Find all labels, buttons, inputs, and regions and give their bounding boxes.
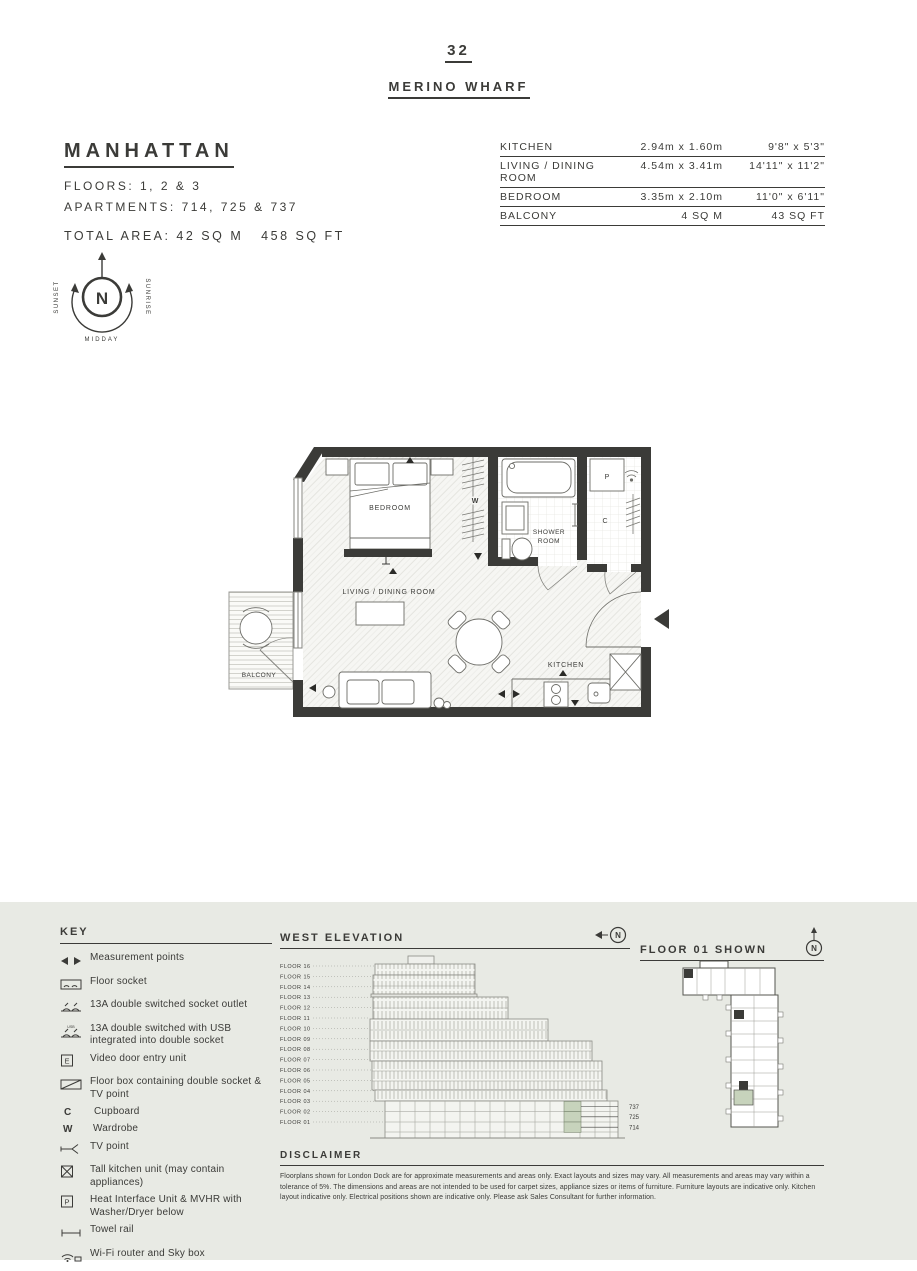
key-item-label: Measurement points [90,952,184,971]
svg-text:FLOOR 15: FLOOR 15 [280,974,311,980]
key-item: C Cupboard [60,1106,272,1119]
svg-text:FLOOR 16: FLOOR 16 [280,964,311,970]
north-arrow-up-icon: N [804,926,824,958]
disclaimer-title: DISCLAIMER [280,1150,824,1166]
highlighted-unit [734,1090,753,1105]
shower-room-label2: ROOM [538,538,560,545]
page-number: 32 [0,42,917,63]
cupboard-letter-icon: C [60,1106,94,1119]
table-row: LIVING / DINING ROOM 4.54m x 3.41m 14'11… [500,158,825,188]
wardrobe-label: W [472,498,479,505]
svg-text:FLOOR 02: FLOOR 02 [280,1110,311,1116]
imperial-size: 11'0" x 6'11" [737,191,825,203]
video-door-entry-icon: E [60,1053,90,1072]
balcony-label: BALCONY [242,672,277,679]
key-item: Floor socket [60,976,272,995]
cupboard-label: C [602,518,607,525]
west-elevation-section: WEST ELEVATION N [280,926,630,949]
key-item-label: TV point [90,1141,129,1160]
key-item: Floor box containing double socket & TV … [60,1076,272,1102]
key-item-label: Towel rail [90,1224,134,1243]
svg-text:FLOOR 05: FLOOR 05 [280,1078,311,1084]
svg-text:E: E [64,1056,69,1065]
table-row: BEDROOM 3.35m x 2.10m 11'0" x 6'11" [500,189,825,207]
svg-text:FLOOR 01: FLOOR 01 [280,1120,311,1126]
measurement-points-icon [60,952,90,971]
heat-interface-unit-icon: P [60,1194,90,1220]
svg-text:FLOOR 13: FLOOR 13 [280,995,311,1001]
compass-icon: N SUNSET SUNRISE MIDDAY [50,250,154,344]
svg-text:FLOOR 12: FLOOR 12 [280,1006,311,1012]
page-number-text: 32 [445,42,472,63]
key-item-label: Floor box containing double socket & TV … [90,1076,272,1102]
development-title: MERINO WHARF [0,78,917,99]
metric-size: 3.35m x 2.10m [598,191,737,203]
svg-text:USB: USB [67,1025,75,1029]
heat-unit-label: P [605,474,610,481]
wardrobe-letter-icon: W [60,1123,93,1136]
key-item-label: Floor socket [90,976,147,995]
compass-sunrise-label: SUNRISE [144,278,150,315]
svg-text:FLOOR 11: FLOOR 11 [280,1016,310,1022]
wifi-router-icon [60,1248,90,1267]
svg-text:N: N [811,944,817,953]
table-row: BALCONY 4 SQ M 43 SQ FT [500,208,825,226]
key-item: USB 13A double switched with USB integra… [60,1023,272,1049]
bedroom-bench [344,549,432,557]
bedroom-label: BEDROOM [369,505,411,512]
svg-text:N: N [615,931,621,940]
floor-labels: FLOOR 16 FLOOR 15 FLOOR 14 FLOOR 13 FLOO… [280,964,385,1126]
imperial-size: 14'11" x 11'2" [737,160,825,172]
highlighted-units [564,1101,581,1132]
key-item: P Heat Interface Unit & MVHR with Washer… [60,1194,272,1220]
west-elevation-title: WEST ELEVATION [280,932,404,944]
key-item-label: Wi-Fi router and Sky box [90,1248,205,1267]
tv-point-icon [60,1141,90,1160]
key-item-label: Video door entry unit [90,1053,186,1072]
apartment-info: MANHATTAN FLOORS: 1, 2 & 3 APARTMENTS: 7… [64,140,345,243]
disclaimer-text: Floorplans shown for London Dock are for… [280,1172,824,1204]
socket-outlet-icon [60,999,90,1018]
svg-text:FLOOR 09: FLOOR 09 [280,1037,311,1043]
room-name: BEDROOM [500,191,598,203]
svg-text:FLOOR 04: FLOOR 04 [280,1089,311,1095]
svg-text:P: P [64,1198,69,1207]
apartment-total-area: TOTAL AREA: 42 SQ M 458 SQ FT [64,229,345,243]
brochure-page: { "page": { "number": "32", "development… [0,0,917,1260]
apartment-numbers: APARTMENTS: 714, 725 & 737 [64,200,345,214]
metric-size: 4 SQ M [598,210,737,222]
svg-text:FLOOR 03: FLOOR 03 [280,1099,311,1105]
floorplan: BEDROOM W SHOWER ROOM P C [226,442,671,722]
kitchen-label: KITCHEN [548,662,584,669]
svg-text:FLOOR 06: FLOOR 06 [280,1068,311,1074]
tall-kitchen-unit-icon [60,1164,90,1190]
sofa [323,672,451,709]
key-item: TV point [60,1141,272,1160]
table-row: KITCHEN 2.94m x 1.60m 9'8" x 5'3" [500,139,825,157]
key-item: E Video door entry unit [60,1053,272,1072]
key-item: Measurement points [60,952,272,971]
imperial-size: 43 SQ FT [737,210,825,222]
compass-sunset-label: SUNSET [54,280,60,313]
coffee-table [356,602,404,625]
imperial-size: 9'8" x 5'3" [737,141,825,153]
compass-north-label: N [96,289,108,308]
svg-text:725: 725 [629,1115,640,1121]
key-item-label: Wardrobe [93,1123,138,1136]
metric-size: 2.94m x 1.60m [598,141,737,153]
compass-midday-label: MIDDAY [85,337,120,343]
svg-text:FLOOR 10: FLOOR 10 [280,1026,311,1032]
svg-text:737: 737 [629,1105,640,1111]
svg-text:FLOOR 08: FLOOR 08 [280,1047,311,1053]
north-arrow-left-icon: N [594,926,630,944]
dimensions-table: KITCHEN 2.94m x 1.60m 9'8" x 5'3" LIVING… [500,139,825,227]
room-name: KITCHEN [500,141,598,153]
disclaimer-section: DISCLAIMER Floorplans shown for London D… [280,1150,824,1204]
floor-socket-icon [60,976,90,995]
development-title-text: MERINO WHARF [388,79,530,99]
west-elevation-drawing: FLOOR 16 FLOOR 15 FLOOR 14 FLOOR 13 FLOO… [280,950,640,1146]
room-name: BALCONY [500,210,598,222]
key-item-label: Tall kitchen unit (may contain appliance… [90,1164,272,1190]
apartment-floors: FLOORS: 1, 2 & 3 [64,179,345,193]
room-name: LIVING / DINING ROOM [500,160,598,184]
key-title: KEY [60,926,272,944]
key-item: Wi-Fi router and Sky box [60,1248,272,1267]
key-legend: KEY Measurement points Floor socket 13A … [60,926,272,1271]
metric-size: 4.54m x 3.41m [598,160,737,172]
key-item-label: 13A double switched socket outlet [90,999,247,1018]
key-item: W Wardrobe [60,1123,272,1136]
towel-rail-icon [60,1224,90,1243]
living-room-label: LIVING / DINING ROOM [342,589,435,596]
floor-box-icon [60,1076,90,1102]
key-item-label: Heat Interface Unit & MVHR with Washer/D… [90,1194,272,1220]
svg-text:714: 714 [629,1126,640,1132]
svg-text:FLOOR 07: FLOOR 07 [280,1058,311,1064]
svg-text:FLOOR 14: FLOOR 14 [280,985,311,991]
key-item: Tall kitchen unit (may contain appliance… [60,1164,272,1190]
shower-room-label: SHOWER [533,529,565,536]
key-item: 13A double switched socket outlet [60,999,272,1018]
key-item-label: 13A double switched with USB integrated … [90,1023,272,1049]
apartment-name: MANHATTAN [64,140,234,168]
floor-key-plan [655,955,825,1140]
socket-usb-icon: USB [60,1023,90,1049]
key-item-label: Cupboard [94,1106,140,1119]
key-item: Towel rail [60,1224,272,1243]
entry-arrow-icon [654,609,669,629]
